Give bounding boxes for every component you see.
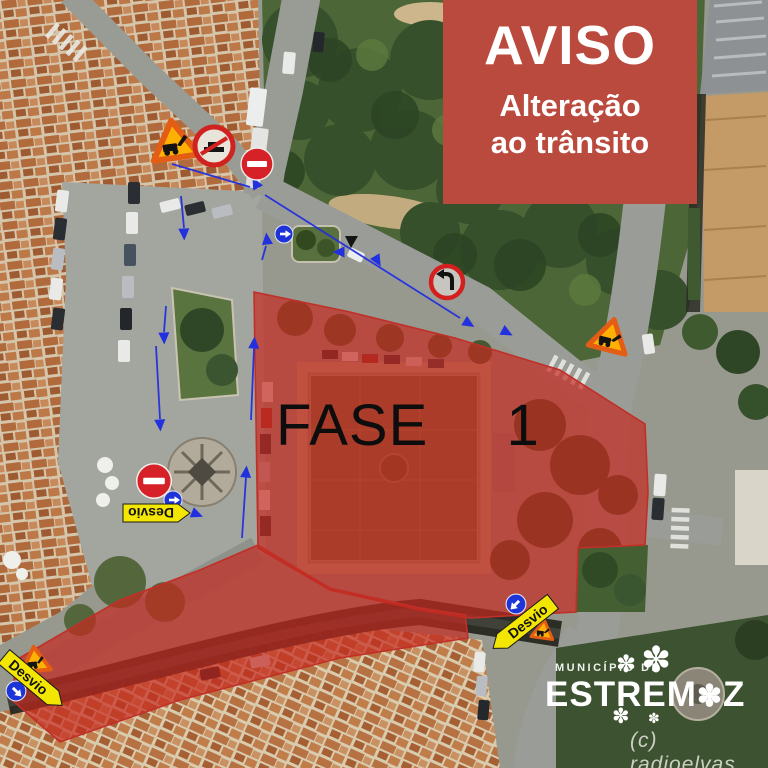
banner-subtitle-line2: ao trânsito [443,125,697,162]
logo-name-end: Z [723,675,745,714]
no-parking-sign [195,127,233,165]
flower-icon: ✽ [697,680,723,713]
detour-label: Desvio [128,505,174,521]
banner-title: AVISO [443,18,697,73]
logo-estremoz-text: ESTREM✽Z [545,677,763,714]
detour-arrow-sign: Desvio [123,504,190,522]
flower-icon: ✽ [612,706,630,727]
flower-icon: ✽ [641,642,671,678]
flower-icon: ✽ [648,711,660,725]
mandatory-direction-sign [275,225,293,243]
notice-banner: AVISO Alteração ao trânsito [443,0,697,204]
no-left-turn-sign [431,266,463,298]
no-entry-sign [137,464,172,499]
flower-icon: ✽ [616,653,636,677]
banner-subtitle-line1: Alteração [443,88,697,125]
no-entry-sign [241,148,273,180]
watermark-credit: (c) radioelvas [630,729,768,768]
phase-label: FASE 1 [276,392,540,459]
traffic-notice-poster: Desvio Desvio Desvio AVISO Alteração ao … [0,0,768,768]
